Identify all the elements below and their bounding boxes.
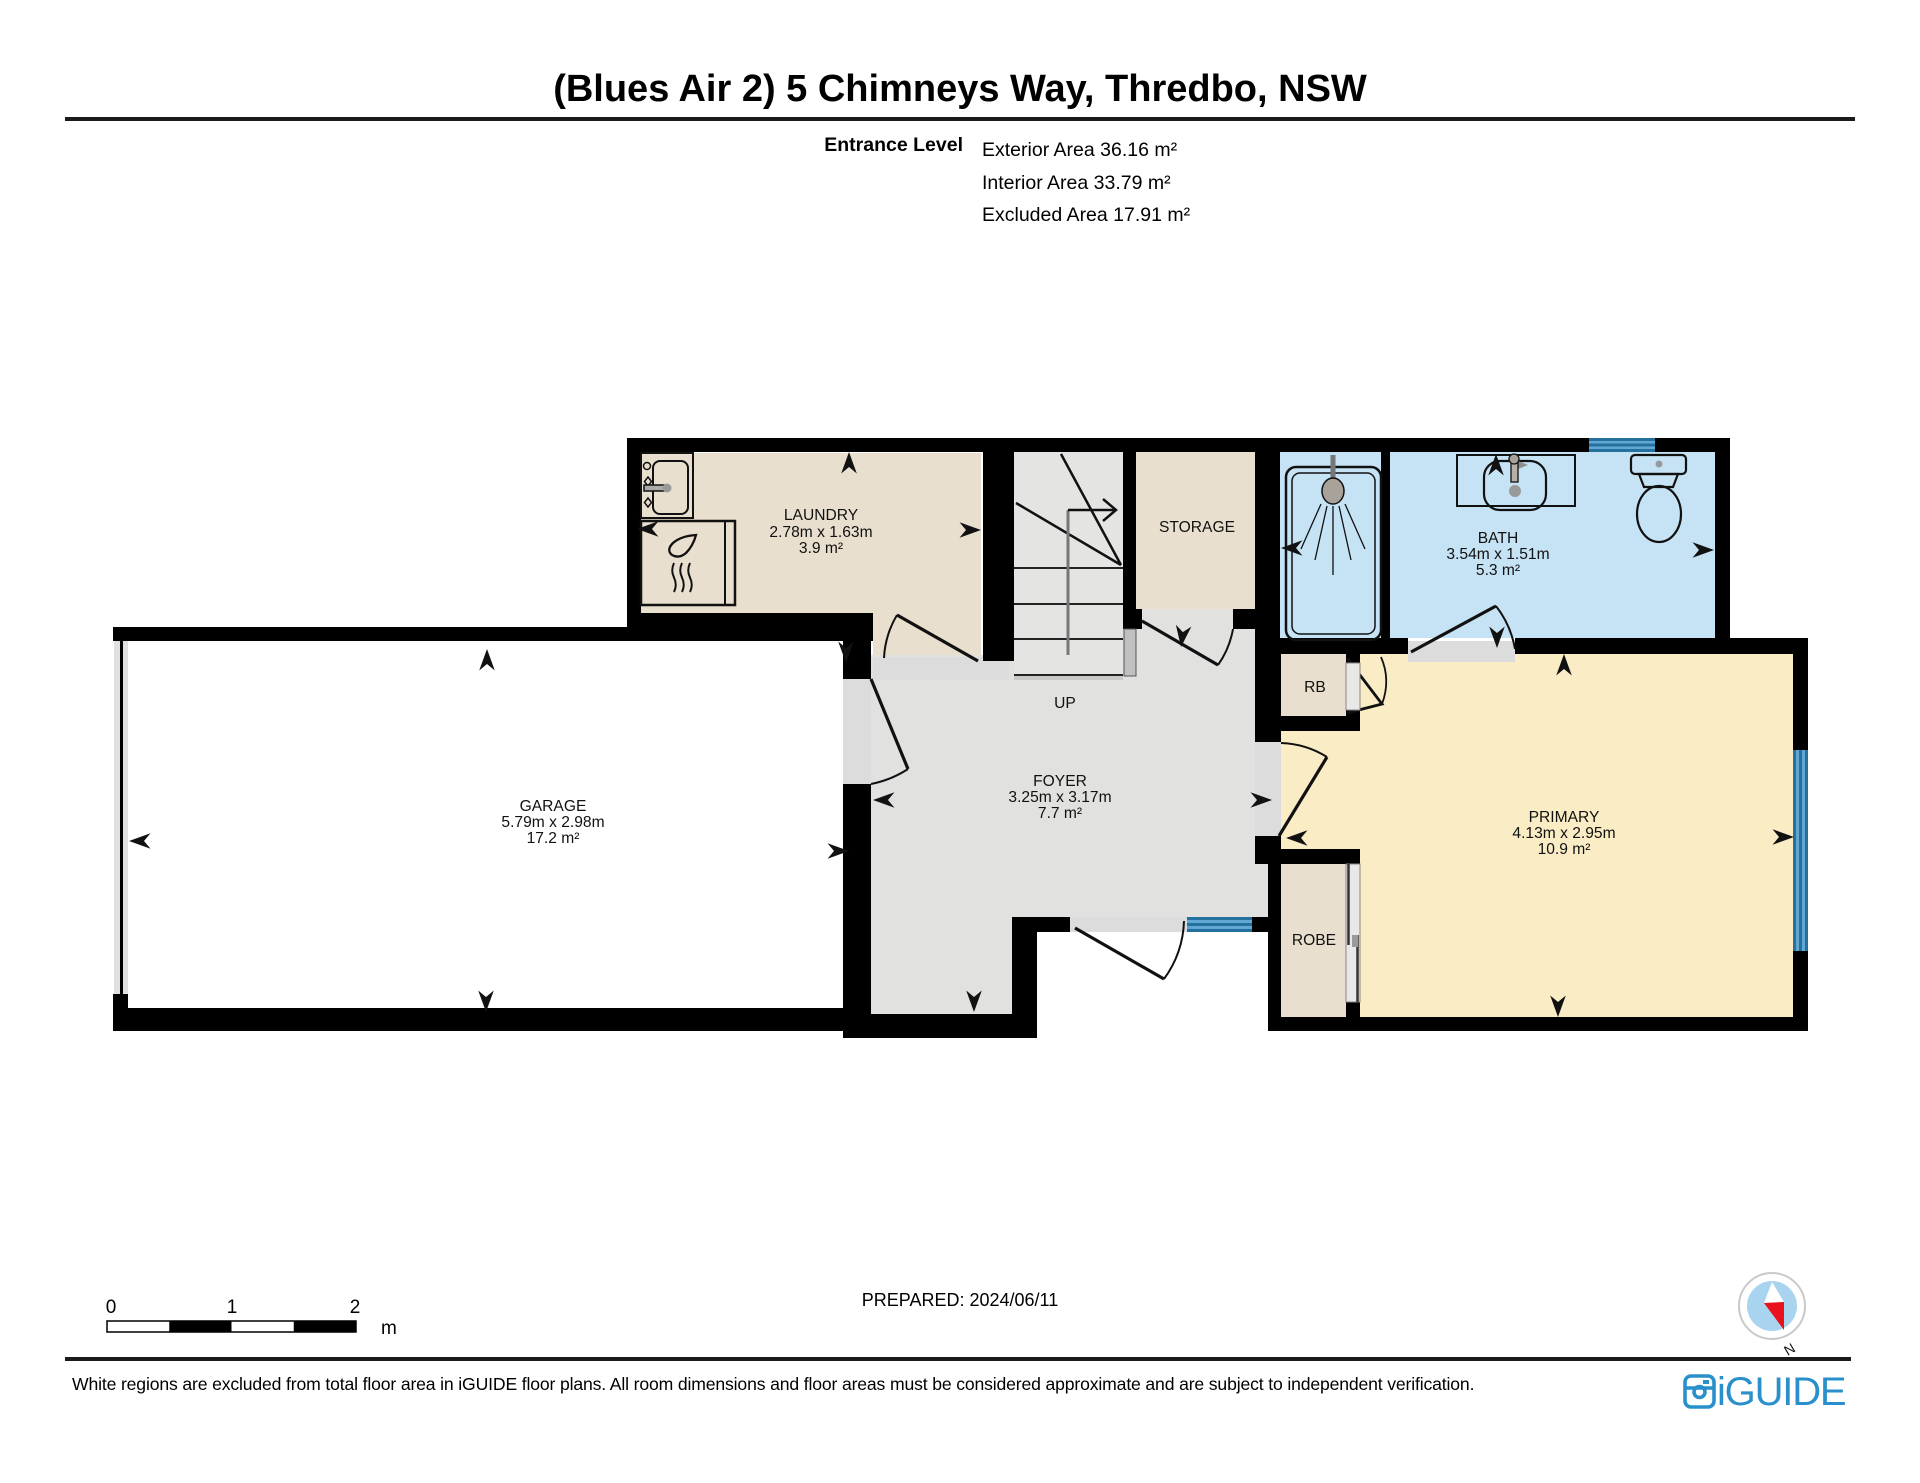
svg-text:2.78m x 1.63m: 2.78m x 1.63m: [769, 524, 872, 541]
svg-text:17.2 m²: 17.2 m²: [527, 830, 580, 847]
svg-text:FOYER: FOYER: [1033, 773, 1087, 790]
svg-text:5.79m x 2.98m: 5.79m x 2.98m: [501, 814, 604, 831]
svg-text:BATH: BATH: [1478, 530, 1518, 547]
svg-text:m: m: [381, 1318, 397, 1339]
svg-text:PRIMARY: PRIMARY: [1529, 809, 1600, 826]
svg-text:3.25m x 3.17m: 3.25m x 3.17m: [1008, 789, 1111, 806]
svg-text:7.7 m²: 7.7 m²: [1038, 805, 1082, 822]
svg-text:ROBE: ROBE: [1292, 932, 1336, 949]
svg-text:5.3 m²: 5.3 m²: [1476, 562, 1520, 579]
svg-text:UP: UP: [1054, 695, 1076, 712]
svg-text:10.9 m²: 10.9 m²: [1538, 841, 1591, 858]
svg-text:GARAGE: GARAGE: [520, 798, 587, 815]
svg-text:3.54m x 1.51m: 3.54m x 1.51m: [1446, 546, 1549, 563]
svg-text:RB: RB: [1304, 679, 1326, 696]
svg-text:4.13m x 2.95m: 4.13m x 2.95m: [1512, 825, 1615, 842]
svg-text:STORAGE: STORAGE: [1159, 519, 1235, 536]
svg-text:iGUIDE: iGUIDE: [1717, 1370, 1845, 1412]
svg-text:3.9 m²: 3.9 m²: [799, 540, 843, 557]
svg-text:LAUNDRY: LAUNDRY: [784, 507, 859, 524]
